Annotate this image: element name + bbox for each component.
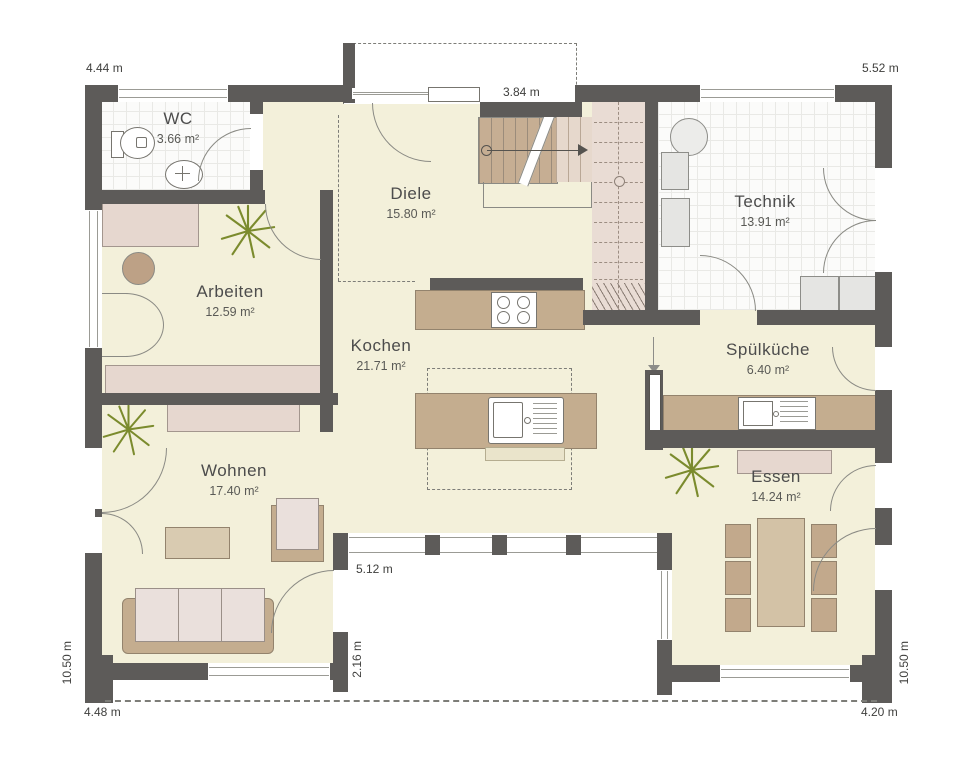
wall-segment xyxy=(480,102,582,117)
wall-segment xyxy=(875,85,892,168)
floor-plan: WC 3.66 m² Diele 15.80 m² Technik 13.91 … xyxy=(0,0,974,779)
room-area: 15.80 m² xyxy=(368,207,454,221)
room-label-arbeiten: Arbeiten 12.59 m² xyxy=(182,282,278,319)
washbasin-tap-icon xyxy=(175,173,190,174)
room-boundary-line xyxy=(338,115,339,281)
sofa-cushion xyxy=(178,588,222,642)
wall-segment xyxy=(228,85,345,102)
arrow-head xyxy=(578,144,588,156)
window xyxy=(208,663,330,680)
door-opening xyxy=(85,448,102,553)
door-pivot xyxy=(95,509,102,517)
desk-chair xyxy=(122,252,155,285)
door-opening xyxy=(333,570,348,632)
wall-segment xyxy=(575,85,700,102)
sofa-cushion xyxy=(135,588,179,642)
wall-segment xyxy=(95,393,338,405)
dimension-label: 4.44 m xyxy=(86,61,123,75)
room-label-wc: WC 3.66 m² xyxy=(138,109,218,146)
dining-chair xyxy=(811,598,837,632)
arbeiten-lowboard xyxy=(105,365,325,395)
dining-chair xyxy=(725,524,751,558)
dimension-label: 10.50 m xyxy=(60,641,74,684)
window xyxy=(700,85,835,102)
wohnen-sideboard xyxy=(167,404,300,432)
arbeiten-sideboard xyxy=(102,202,199,247)
wall-segment xyxy=(645,102,658,310)
stair-start-marker xyxy=(481,145,492,156)
arrow-line xyxy=(653,337,654,367)
technik-unit xyxy=(661,152,689,190)
room-name: Spülküche xyxy=(712,340,824,360)
door-opening xyxy=(875,545,892,590)
window xyxy=(85,210,102,348)
wall-segment xyxy=(645,430,877,448)
wall-segment xyxy=(645,310,700,325)
window xyxy=(657,570,672,640)
room-boundary-line xyxy=(338,281,415,282)
window-mullion xyxy=(492,535,507,555)
dining-table xyxy=(757,518,805,627)
terrace-floor xyxy=(345,533,658,703)
room-label-kochen: Kochen 21.71 m² xyxy=(336,336,426,373)
wall-segment xyxy=(850,665,877,682)
wall-segment xyxy=(250,170,263,204)
wall-segment xyxy=(85,190,265,204)
door-opening xyxy=(875,347,892,390)
room-area: 21.71 m² xyxy=(336,359,426,373)
room-area: 6.40 m² xyxy=(712,363,824,377)
room-label-essen: Essen 14.24 m² xyxy=(733,467,819,504)
coffee-table xyxy=(165,527,230,559)
dining-chair xyxy=(725,561,751,595)
entrance-door-leaf xyxy=(428,87,480,102)
plant-icon xyxy=(663,441,721,499)
room-name: Arbeiten xyxy=(182,282,278,302)
sink-basin-icon xyxy=(493,402,523,438)
draining-board-icon xyxy=(780,401,808,424)
dimension-label: 5.52 m xyxy=(862,61,899,75)
dining-chair xyxy=(725,598,751,632)
wall-segment xyxy=(875,508,892,545)
wall-segment xyxy=(100,663,208,680)
room-area: 3.66 m² xyxy=(138,132,218,146)
window xyxy=(720,665,850,682)
dimension-label: 3.84 m xyxy=(503,85,540,99)
stair-direction-arrow-icon xyxy=(487,150,580,151)
sink-drain-icon xyxy=(524,417,531,424)
room-area: 14.24 m² xyxy=(733,490,819,504)
room-area: 13.91 m² xyxy=(712,215,818,229)
wall-segment xyxy=(658,665,720,682)
room-name: Technik xyxy=(712,192,818,212)
wall-segment xyxy=(333,533,348,570)
room-name: WC xyxy=(138,109,218,129)
window-mullion xyxy=(425,535,440,555)
door-opening xyxy=(250,114,263,170)
stair-landing xyxy=(483,182,592,208)
roof-outline-line xyxy=(105,700,877,702)
room-area: 17.40 m² xyxy=(186,484,282,498)
sink-drain-icon xyxy=(773,411,779,417)
room-name: Kochen xyxy=(336,336,426,356)
room-name: Diele xyxy=(368,184,454,204)
wall-segment xyxy=(875,272,892,347)
door-opening xyxy=(875,463,892,508)
wall-segment xyxy=(250,102,263,114)
wall-segment xyxy=(657,533,672,570)
stair-marker xyxy=(614,176,625,187)
entrance-sidelight-window xyxy=(352,88,430,99)
technik-unit xyxy=(661,198,690,247)
room-name: Essen xyxy=(733,467,819,487)
room-label-diele: Diele 15.80 m² xyxy=(368,184,454,221)
radiator-icon xyxy=(649,374,661,438)
draining-board-icon xyxy=(533,403,557,436)
armchair-cushion xyxy=(276,498,319,550)
dimension-label: 4.20 m xyxy=(861,705,898,719)
island-step xyxy=(485,447,565,461)
window-mullion xyxy=(566,535,581,555)
boiler-icon xyxy=(670,118,708,156)
wall-segment xyxy=(430,278,583,290)
dimension-label: 5.12 m xyxy=(356,562,393,576)
dimension-label: 2.16 m xyxy=(350,641,364,678)
sink-basin-icon xyxy=(743,401,773,426)
wall-segment xyxy=(333,632,348,692)
wall-segment xyxy=(875,390,892,463)
room-name: Wohnen xyxy=(186,461,282,481)
room-area: 12.59 m² xyxy=(182,305,278,319)
wall-segment xyxy=(757,310,877,325)
door-opening xyxy=(875,168,892,272)
stair-center-line xyxy=(618,102,619,313)
stair-hatch xyxy=(592,283,645,312)
dimension-label: 4.48 m xyxy=(84,705,121,719)
dimension-label: 10.50 m xyxy=(897,641,911,684)
window xyxy=(118,85,228,102)
room-label-spuelkueche: Spülküche 6.40 m² xyxy=(712,340,824,377)
sofa-cushion xyxy=(221,588,265,642)
room-label-wohnen: Wohnen 17.40 m² xyxy=(186,461,282,498)
room-label-technik: Technik 13.91 m² xyxy=(712,192,818,229)
